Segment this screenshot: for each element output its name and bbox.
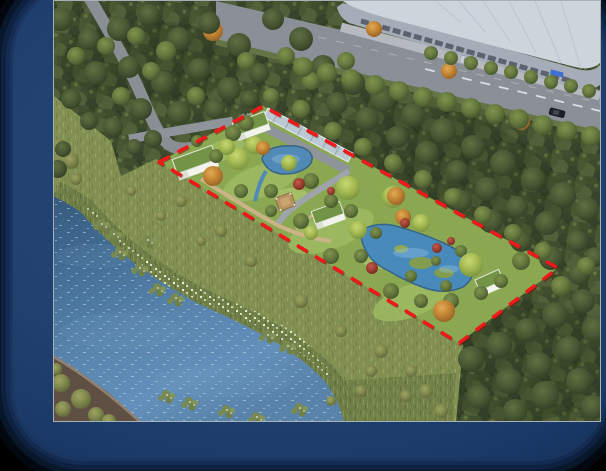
aerial-rendering-image — [53, 0, 601, 422]
photo-grain — [54, 1, 600, 421]
slide-canvas — [0, 0, 606, 471]
aerial-rendering-svg — [54, 1, 600, 421]
